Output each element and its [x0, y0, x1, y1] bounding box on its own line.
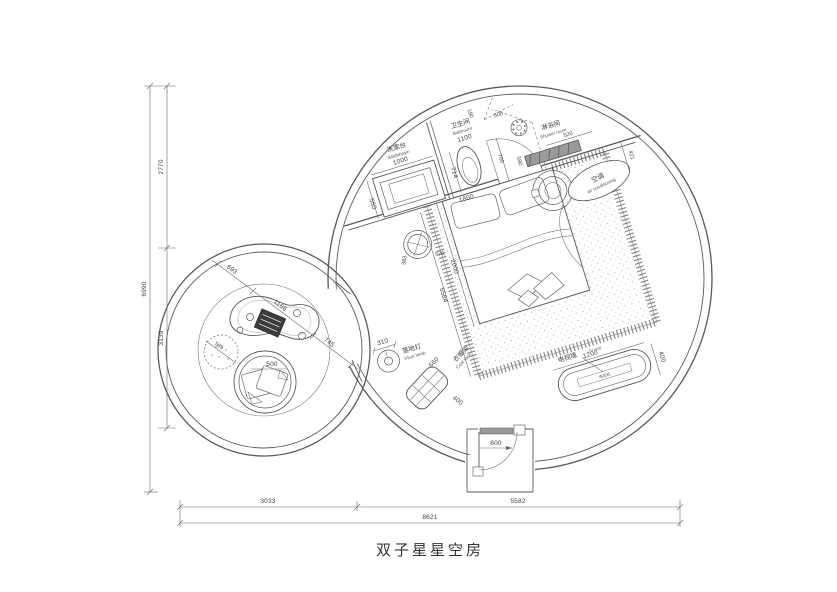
- dim-bottom-left: 3033: [260, 498, 275, 505]
- dim-toilet: 714: [449, 166, 459, 179]
- dim-side-table-a: 383: [401, 255, 408, 265]
- dim-coat-depth: 400: [451, 395, 464, 408]
- dim-coat-width: 660: [428, 356, 441, 369]
- toilet: [453, 144, 486, 189]
- dim-lamp: 310: [376, 337, 389, 347]
- dim-left-bottom: 3139: [158, 330, 165, 345]
- dim-ac-offset: 421: [627, 150, 635, 161]
- dim-590: 590: [515, 156, 523, 167]
- dim-washbasin-depth: 550: [367, 197, 377, 210]
- pouf: 589: [204, 335, 238, 369]
- dim-bottom-right: 5582: [510, 498, 525, 505]
- dim-platform: 5584: [438, 287, 449, 304]
- small-circle-lounge-walls: [158, 244, 370, 456]
- dim-shower-door: 500: [493, 111, 504, 119]
- floor-plan-svg: 空调 air conditioning 电视机 1200 400 电视墙 TV …: [0, 0, 837, 592]
- floor-plan-page: 空调 air conditioning 电视机 1200 400 电视墙 TV …: [0, 0, 837, 592]
- dim-chair-cushion: 500: [266, 361, 278, 368]
- pillow-chair: 500: [234, 351, 296, 413]
- dim-190: 190: [466, 108, 474, 119]
- door-stop: [514, 425, 525, 435]
- dim-side-table-b: 570: [435, 251, 445, 258]
- dim-left-top: 2770: [158, 159, 165, 174]
- dim-left-total: 6990: [141, 281, 148, 296]
- drawing-title: 双子星星空房: [376, 542, 484, 559]
- dim-bottom-total: 8621: [422, 514, 437, 521]
- left-dimension-lines: 6990 2770 3139: [141, 83, 176, 495]
- bottom-dimension-lines: 3033 5582 8621: [177, 498, 683, 527]
- dim-bench: 520: [563, 131, 574, 139]
- door-threshold: [480, 428, 513, 434]
- dim-entry-door: 800: [490, 440, 502, 447]
- rotated-suite: 空调 air conditioning 电视机 1200 400 电视墙 TV …: [311, 60, 709, 454]
- dim-bath-door: 700: [496, 153, 504, 164]
- dim-tv-depth: 400: [657, 350, 667, 363]
- dim-bathroom-width: 1100: [457, 133, 473, 144]
- entry-vestibule: 800: [465, 425, 535, 492]
- floor-lamp: 310 落地灯 Floor lamp: [369, 328, 428, 375]
- dim-lounge-a: 693: [225, 264, 239, 277]
